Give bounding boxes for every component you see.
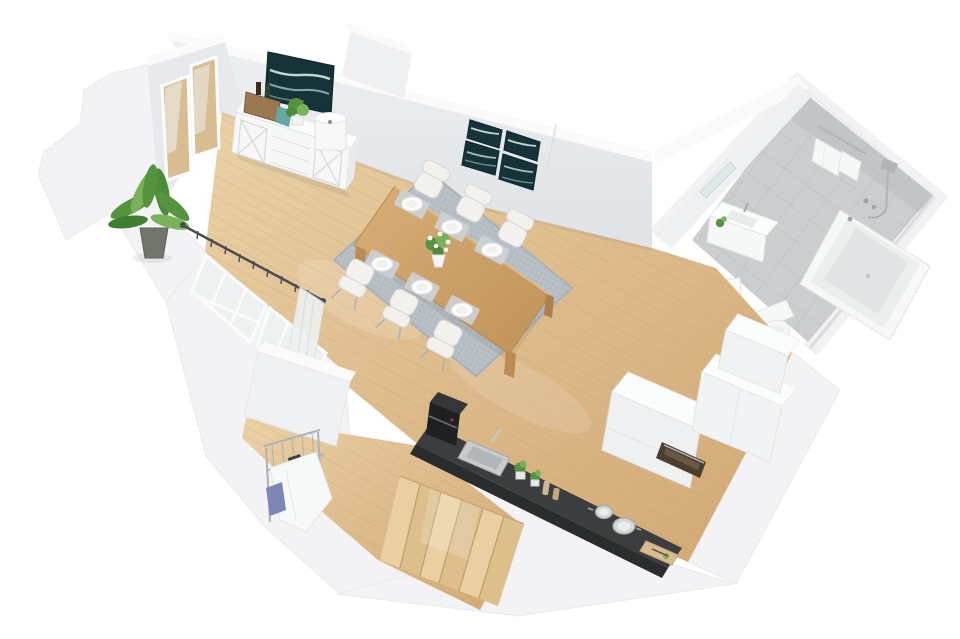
floorplan-canvas — [0, 0, 960, 639]
table-leg-2 — [504, 350, 516, 378]
tub-faucet — [848, 217, 853, 222]
tub-drain — [866, 274, 870, 278]
table-lamp — [315, 113, 346, 151]
bathroom-plant-leaf — [721, 216, 727, 222]
wine-bottle-1 — [256, 82, 261, 95]
floorplan-render — [0, 0, 960, 639]
wine-bottle-2 — [265, 84, 270, 96]
palm-pot — [140, 228, 168, 258]
plant-pot — [292, 116, 303, 125]
